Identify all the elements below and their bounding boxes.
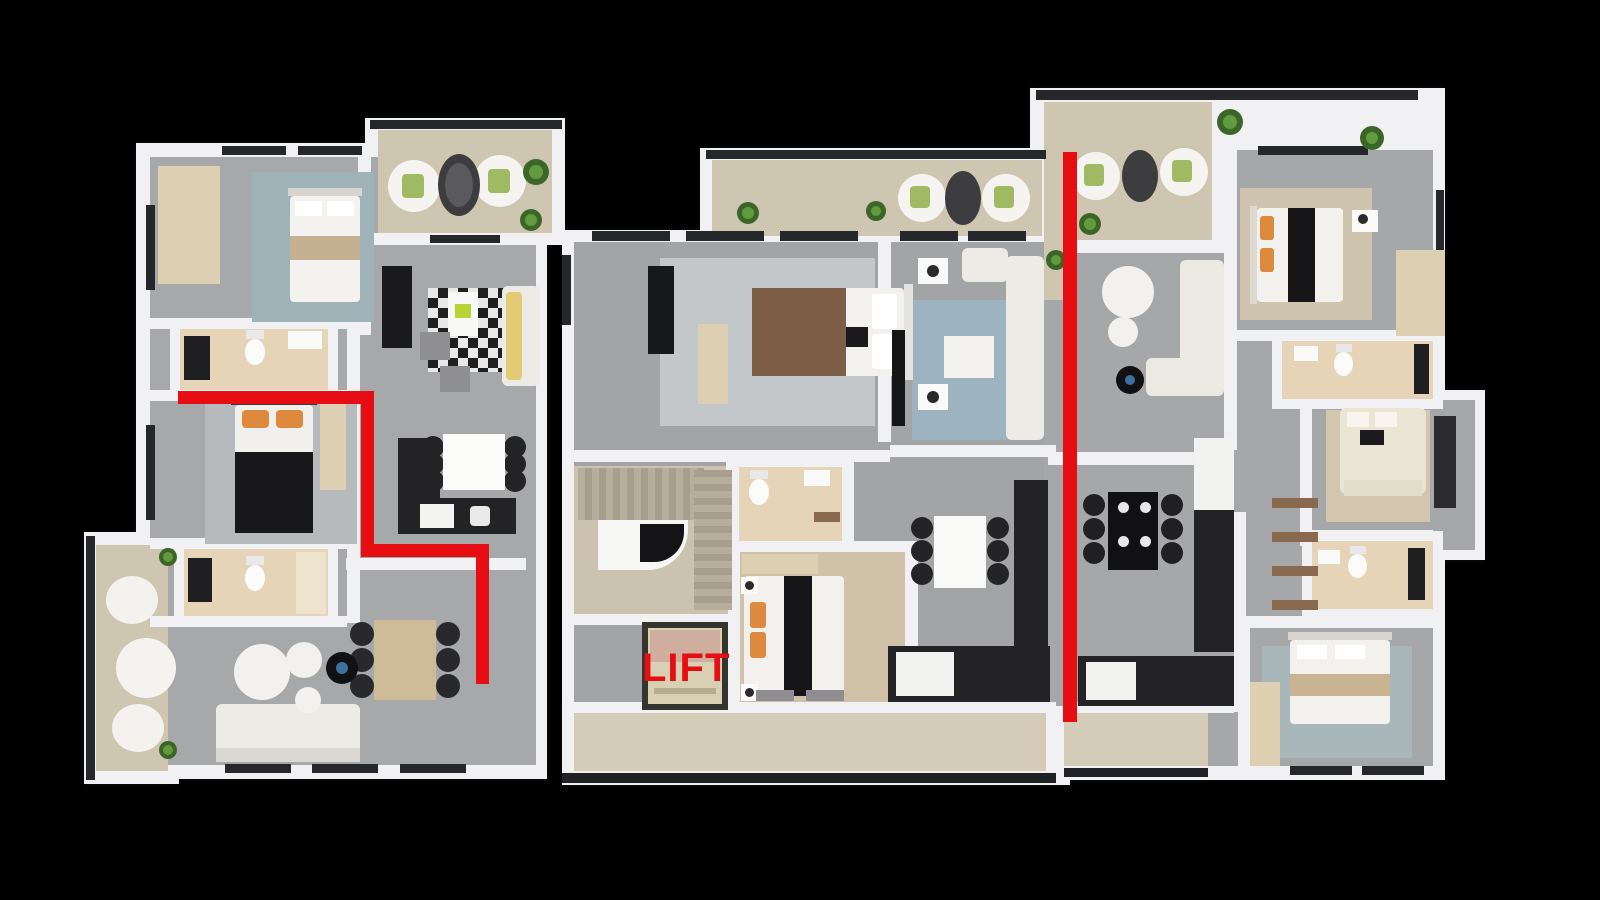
chair bbox=[987, 540, 1009, 562]
window bbox=[400, 764, 466, 773]
toilet-tank bbox=[246, 556, 264, 565]
bath-cabinet bbox=[184, 336, 210, 380]
toilet bbox=[1348, 554, 1367, 578]
wood-shelf bbox=[1272, 498, 1318, 508]
bed-c2-pillow bbox=[1347, 412, 1369, 427]
round-table bbox=[1108, 317, 1138, 347]
wall bbox=[1046, 706, 1064, 772]
red-divider-a-seg1 bbox=[178, 391, 374, 404]
toilet bbox=[749, 479, 769, 505]
window bbox=[225, 764, 291, 773]
window bbox=[1362, 766, 1424, 775]
plant-inner bbox=[163, 552, 173, 562]
patio-cushion bbox=[402, 174, 424, 198]
window bbox=[146, 425, 155, 520]
chair bbox=[911, 540, 933, 562]
sofa bbox=[1146, 358, 1224, 396]
sofa-cushions-yellow bbox=[506, 292, 522, 380]
bath-bench bbox=[814, 512, 840, 522]
plant-inner bbox=[1223, 115, 1237, 129]
plant-inner bbox=[525, 214, 537, 226]
patio-chair bbox=[112, 704, 164, 752]
wall bbox=[1224, 150, 1237, 450]
wood-shelf bbox=[1272, 600, 1318, 610]
window bbox=[1290, 766, 1352, 775]
window-band bbox=[1064, 768, 1208, 777]
wardrobe-dark bbox=[1434, 416, 1456, 508]
plant-inner bbox=[1051, 255, 1061, 265]
wardrobe bbox=[698, 324, 728, 404]
plant-inner bbox=[163, 745, 173, 755]
chair bbox=[1161, 494, 1183, 516]
chair bbox=[911, 517, 933, 539]
chair bbox=[504, 470, 526, 492]
plant-inner bbox=[529, 165, 543, 179]
wall bbox=[346, 558, 526, 570]
bed-b1-pillow-dark bbox=[846, 327, 868, 347]
wood-shelf bbox=[1272, 532, 1318, 542]
corridor-c-floor bbox=[1064, 712, 1208, 766]
sink bbox=[1318, 550, 1340, 564]
wall bbox=[150, 616, 347, 627]
kitchen-counter bbox=[1014, 480, 1048, 646]
lift-label: LIFT bbox=[642, 646, 728, 690]
bed-a2-blanket bbox=[235, 452, 313, 533]
kitchen-counter bbox=[398, 438, 440, 498]
window bbox=[298, 146, 362, 155]
decor-logo bbox=[455, 304, 471, 318]
stair-treads-right bbox=[694, 470, 732, 610]
window bbox=[592, 231, 670, 241]
gap-between-units bbox=[550, 245, 562, 703]
patio-cushion bbox=[910, 186, 930, 208]
round-table bbox=[234, 644, 290, 700]
wall bbox=[1077, 240, 1225, 253]
chair bbox=[1083, 518, 1105, 540]
balcony-rail bbox=[86, 536, 95, 780]
bath-tv bbox=[188, 558, 212, 602]
round-table bbox=[1102, 266, 1154, 318]
bath-tv bbox=[1414, 344, 1429, 394]
wall bbox=[1238, 616, 1433, 628]
wall bbox=[1300, 396, 1312, 546]
bed-b2-pillow bbox=[750, 602, 766, 628]
toilet-tank bbox=[246, 330, 264, 339]
window bbox=[968, 231, 1026, 241]
red-divider-a-seg2 bbox=[361, 391, 374, 557]
patio-round-table bbox=[116, 638, 176, 698]
chair bbox=[436, 622, 460, 646]
bed-c3-pillow bbox=[1297, 645, 1327, 659]
ottoman bbox=[440, 366, 470, 392]
bed-a1-stripe bbox=[290, 236, 360, 260]
wall-top-c bbox=[1224, 102, 1445, 150]
wall bbox=[1234, 512, 1246, 712]
patio-table-oval bbox=[1122, 150, 1158, 202]
ottoman bbox=[420, 332, 450, 360]
sofa-back bbox=[216, 748, 360, 762]
plant-inner bbox=[1366, 132, 1378, 144]
sink bbox=[288, 331, 322, 349]
kitchen-cabinet bbox=[1194, 438, 1234, 510]
bed-c1-headboard bbox=[1250, 206, 1257, 304]
chair bbox=[911, 563, 933, 585]
window bbox=[562, 255, 571, 325]
wardrobe bbox=[1396, 250, 1445, 336]
plant-inner bbox=[742, 207, 754, 219]
bed-b1-headboard bbox=[904, 284, 913, 380]
wardrobe bbox=[158, 166, 220, 284]
red-divider-a-seg4 bbox=[476, 544, 489, 684]
bed-c1-pillow bbox=[1260, 216, 1274, 240]
window bbox=[222, 146, 286, 155]
dresser-dark bbox=[648, 266, 674, 354]
chair bbox=[436, 674, 460, 698]
plate bbox=[1118, 536, 1129, 547]
corridor-b-floor bbox=[574, 712, 1046, 771]
chair bbox=[987, 563, 1009, 585]
dining-table-wood bbox=[374, 620, 436, 700]
chair bbox=[1083, 542, 1105, 564]
chair bbox=[987, 517, 1009, 539]
lamp bbox=[1358, 214, 1368, 224]
patio-table-oval bbox=[945, 171, 981, 225]
wardrobe bbox=[1250, 682, 1280, 766]
sofa bbox=[1006, 256, 1044, 440]
balcony-door bbox=[430, 235, 500, 243]
bed-c2-pillow-dark bbox=[1360, 430, 1384, 445]
bed-c3-pillow bbox=[1335, 645, 1365, 659]
toilet bbox=[245, 565, 265, 591]
dining-table bbox=[934, 516, 986, 588]
dining-table bbox=[443, 434, 505, 490]
chair bbox=[1083, 494, 1105, 516]
terrace-rail bbox=[706, 150, 1046, 159]
toilet-tank bbox=[1336, 344, 1352, 352]
wall bbox=[890, 445, 1056, 457]
tv-wall bbox=[892, 330, 905, 426]
round-table bbox=[286, 642, 322, 678]
sink bbox=[1294, 346, 1318, 361]
bench bbox=[806, 690, 844, 701]
bed-b2-pillow bbox=[750, 632, 766, 658]
record-disc-center bbox=[1125, 375, 1135, 385]
patio-cushion bbox=[488, 169, 510, 193]
lamp bbox=[927, 391, 939, 403]
bath-tv bbox=[1408, 548, 1425, 600]
plant-inner bbox=[1084, 218, 1096, 230]
bed-c3-stripe bbox=[1290, 674, 1390, 696]
record-disc-center bbox=[336, 662, 348, 674]
patio-cushion bbox=[1084, 164, 1104, 186]
kitchen-island bbox=[1086, 662, 1136, 700]
window bbox=[686, 231, 764, 241]
bed-c1-pillow bbox=[1260, 248, 1274, 272]
patio-chair bbox=[106, 576, 158, 624]
patio-cushion bbox=[1172, 160, 1192, 182]
patio-table-oval-top bbox=[445, 163, 473, 207]
wardrobe bbox=[742, 554, 818, 574]
bed-c2-pillow bbox=[1375, 412, 1397, 427]
chair bbox=[1161, 518, 1183, 540]
lamp bbox=[745, 688, 754, 697]
chair bbox=[436, 648, 460, 672]
round-table bbox=[295, 687, 321, 713]
bed-a2-pillow bbox=[276, 410, 303, 428]
toilet-tank bbox=[1350, 546, 1366, 554]
wardrobe bbox=[320, 402, 346, 490]
plant-inner bbox=[871, 206, 881, 216]
patio-cushion bbox=[994, 186, 1014, 208]
window bbox=[900, 231, 958, 241]
bed-a1-pillow bbox=[295, 201, 322, 216]
window bbox=[780, 231, 858, 241]
plate bbox=[1140, 536, 1151, 547]
plate bbox=[1140, 502, 1151, 513]
toilet-tank bbox=[750, 470, 768, 479]
bed-b2-stripe bbox=[784, 576, 812, 696]
bench bbox=[756, 690, 794, 701]
kitchen-counter bbox=[398, 498, 516, 534]
sofa bbox=[962, 248, 1008, 282]
wood-shelf bbox=[1272, 566, 1318, 576]
bed-c3-headboard bbox=[1288, 632, 1392, 640]
bed-c2-foot bbox=[1344, 480, 1422, 496]
shower bbox=[296, 552, 326, 614]
bed-a2-pillow bbox=[242, 410, 269, 428]
wall bbox=[1300, 530, 1433, 541]
lamp bbox=[927, 265, 939, 277]
toilet bbox=[245, 339, 265, 365]
bed-a1-headboard bbox=[288, 188, 362, 196]
window bbox=[146, 205, 155, 290]
chair bbox=[1161, 542, 1183, 564]
balcony-rail bbox=[370, 120, 562, 129]
dining-table-dark bbox=[1108, 492, 1158, 570]
red-divider-bc bbox=[1063, 152, 1077, 722]
tv-unit bbox=[382, 266, 412, 348]
bed-c1-stripe bbox=[1288, 208, 1315, 302]
chair bbox=[350, 622, 374, 646]
red-divider-a-seg3 bbox=[361, 544, 489, 557]
wall bbox=[728, 541, 918, 552]
window-band bbox=[562, 773, 1056, 783]
stair-treads-top bbox=[578, 468, 704, 520]
bed-b1-pillow bbox=[872, 294, 897, 329]
wall bbox=[574, 450, 890, 462]
bed-b1-blanket bbox=[752, 288, 846, 376]
kitchen-island bbox=[420, 504, 454, 528]
sink bbox=[804, 470, 830, 486]
bed-a1-pillow bbox=[327, 201, 354, 216]
terrace-rail bbox=[1036, 90, 1418, 100]
coffee-table bbox=[944, 336, 994, 378]
toilet bbox=[1334, 352, 1353, 376]
kitchen-sink bbox=[470, 506, 490, 526]
window bbox=[1258, 146, 1368, 155]
kitchen-counter bbox=[1194, 510, 1234, 652]
kitchen-island bbox=[896, 652, 954, 696]
window bbox=[312, 764, 378, 773]
plate bbox=[1118, 502, 1129, 513]
lamp bbox=[745, 581, 754, 590]
floor-plan-canvas: LIFT bbox=[0, 0, 1600, 900]
